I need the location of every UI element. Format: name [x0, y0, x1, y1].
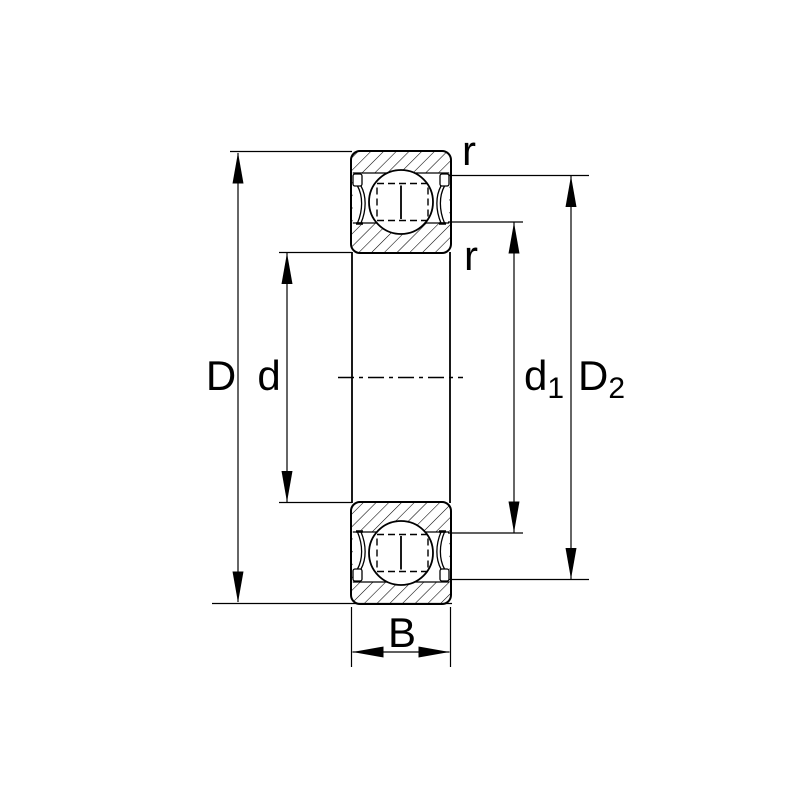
shield-anchor-left-bottom [353, 569, 362, 581]
arrow-B-left [353, 647, 384, 658]
arrow-d-up [282, 253, 293, 284]
label-d1-subscript: 1 [547, 372, 564, 405]
bearing-section-bottom [351, 502, 451, 604]
label-B: B [388, 609, 416, 656]
dimension-B: B [352, 607, 451, 667]
label-r-inner: r [464, 232, 478, 279]
arrow-d-down [282, 471, 293, 502]
arrow-D-down [233, 572, 244, 603]
dimension-d: d [257, 253, 352, 503]
shield-anchor-right-top [440, 174, 449, 186]
shield-anchor-right-bottom [440, 569, 449, 581]
label-d1: d1 [524, 352, 564, 405]
label-D2: D2 [578, 352, 625, 405]
arrow-D2-down [566, 548, 577, 579]
label-D2-base: D [578, 352, 608, 399]
bearing-section-top [351, 151, 451, 253]
label-D: D [206, 352, 236, 399]
arrow-d1-down [509, 502, 520, 533]
label-d1-base: d [524, 352, 547, 399]
arrow-B-right [419, 647, 450, 658]
shield-anchor-left-top [353, 174, 362, 186]
arrow-d1-up [509, 223, 520, 254]
label-r-outer: r [462, 127, 476, 174]
label-d: d [257, 352, 280, 399]
drawing-canvas: D d d1 D2 B r r [0, 0, 800, 800]
bearing-dimension-diagram: D d d1 D2 B r r [0, 0, 800, 800]
arrow-D-up [233, 153, 244, 184]
arrow-D2-up [566, 176, 577, 207]
label-D2-subscript: 2 [608, 372, 625, 405]
